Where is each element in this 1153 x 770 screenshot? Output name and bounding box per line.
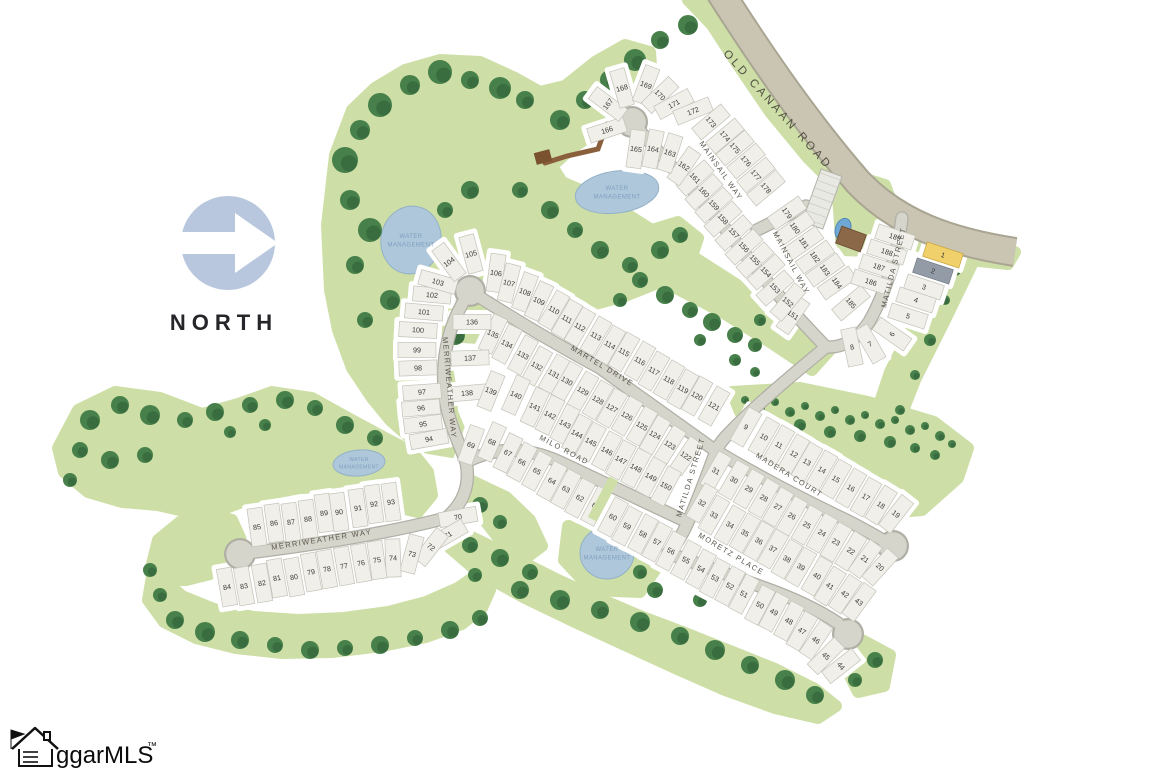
tree-icon	[472, 610, 488, 626]
tree-icon	[101, 451, 119, 469]
tree-icon	[407, 630, 423, 646]
lot-number: 90	[334, 507, 343, 517]
north-indicator: NORTH	[170, 196, 278, 335]
tree-icon	[591, 601, 609, 619]
lot-number: 106	[489, 268, 502, 279]
tree-icon	[930, 450, 940, 460]
water-management-label: WATER	[606, 186, 629, 192]
lot-number: 82	[257, 578, 266, 588]
tree-icon	[651, 241, 669, 259]
tree-icon	[72, 442, 88, 458]
water-management-label: MANAGEMENT	[387, 243, 434, 249]
tree-icon	[854, 430, 866, 442]
lot-number: 79	[306, 567, 315, 577]
tree-icon	[741, 656, 759, 674]
cul-de-sac	[226, 540, 254, 568]
tree-icon	[301, 641, 319, 659]
lot-number: 76	[356, 558, 365, 568]
tree-icon	[861, 411, 869, 419]
lot-number: 81	[272, 573, 281, 583]
tree-icon	[428, 60, 452, 84]
tree-icon	[910, 443, 920, 453]
tree-icon	[921, 422, 929, 430]
tree-icon	[511, 581, 529, 599]
tree-icon	[656, 286, 674, 304]
lot-number: 87	[286, 517, 295, 527]
tree-icon	[461, 181, 479, 199]
lot-number: 91	[353, 503, 362, 513]
tree-icon	[867, 652, 883, 668]
tree-icon	[632, 272, 648, 288]
tree-icon	[489, 77, 511, 99]
lot-number: 80	[289, 572, 298, 582]
tree-icon	[729, 354, 741, 366]
tree-icon	[259, 419, 271, 431]
lot-136[interactable]: 136	[453, 315, 491, 330]
tree-icon	[357, 312, 373, 328]
tree-icon	[567, 222, 583, 238]
lot-number: 165	[629, 144, 642, 155]
tree-icon	[775, 670, 795, 690]
tree-icon	[647, 582, 663, 598]
tree-icon	[143, 563, 157, 577]
lot-number: 77	[339, 561, 348, 571]
lot-number: 101	[418, 307, 431, 317]
tree-icon	[541, 201, 559, 219]
lot-74[interactable]: 74	[385, 539, 401, 578]
tree-icon	[468, 568, 482, 582]
tree-icon	[350, 120, 370, 140]
tree-icon	[845, 415, 855, 425]
tree-icon	[140, 405, 160, 425]
tree-icon	[111, 396, 129, 414]
tree-icon	[80, 410, 100, 430]
lot-number: 89	[319, 508, 328, 518]
north-label: NORTH	[170, 310, 278, 335]
tree-icon	[461, 71, 479, 89]
logo-text: ggarMLS	[56, 742, 153, 769]
tree-icon	[705, 640, 725, 660]
tree-icon	[630, 612, 650, 632]
tree-icon	[512, 182, 528, 198]
water-management-label: WATER	[596, 547, 619, 553]
tree-icon	[493, 515, 507, 529]
tree-icon	[824, 426, 836, 438]
lot-number: 102	[426, 290, 439, 300]
lot-number: 94	[424, 434, 433, 444]
tree-icon	[875, 419, 885, 429]
tree-icon	[336, 416, 354, 434]
lot-97[interactable]: 97	[403, 383, 442, 401]
tree-icon	[368, 93, 392, 117]
tree-icon	[750, 367, 760, 377]
lot-number: 86	[269, 518, 278, 528]
lot-96[interactable]: 96	[401, 399, 440, 417]
tree-icon	[948, 440, 956, 448]
tree-icon	[884, 436, 896, 448]
lot-101[interactable]: 101	[404, 303, 443, 321]
tree-icon	[166, 611, 184, 629]
tree-icon	[153, 588, 167, 602]
site-plan-map: 1234567891011121314151617181920212223242…	[0, 0, 1153, 770]
lot-number: 88	[303, 514, 312, 524]
tree-icon	[267, 637, 283, 653]
tree-icon	[307, 400, 323, 416]
tree-icon	[748, 338, 762, 352]
lot-number: 93	[386, 497, 395, 507]
tree-icon	[891, 416, 899, 424]
tree-icon	[400, 75, 420, 95]
lot-number: 83	[239, 581, 248, 591]
lot-number: 95	[418, 419, 427, 429]
tree-icon	[848, 673, 862, 687]
tree-icon	[367, 430, 383, 446]
tree-icon	[516, 91, 534, 109]
tree-icon	[137, 447, 153, 463]
tree-icon	[613, 293, 627, 307]
lot-number: 75	[372, 555, 381, 565]
water-management-label: MANAGEMENT	[339, 465, 379, 471]
lot-number: 85	[252, 522, 261, 532]
tree-icon	[671, 627, 689, 645]
water-management-label: WATER	[400, 234, 423, 240]
tree-icon	[337, 640, 353, 656]
tree-icon	[831, 406, 839, 414]
tree-icon	[491, 549, 509, 567]
tree-icon	[242, 397, 258, 413]
tree-icon	[358, 218, 382, 242]
cul-de-sac	[456, 277, 484, 305]
lot-number: 74	[389, 553, 397, 562]
tree-icon	[340, 190, 360, 210]
tree-icon	[346, 256, 364, 274]
tree-icon	[785, 407, 795, 417]
tree-icon	[727, 327, 743, 343]
tree-icon	[682, 302, 698, 318]
tree-icon	[206, 403, 224, 421]
lot-99[interactable]: 99	[398, 343, 436, 358]
logo-trademark: ™	[147, 741, 157, 752]
tree-icon	[910, 370, 920, 380]
tree-icon	[441, 621, 459, 639]
lot-number: 136	[466, 318, 478, 327]
tree-icon	[462, 537, 478, 553]
lot-number: 99	[413, 346, 421, 355]
lot-number: 92	[369, 499, 378, 509]
lot-number: 97	[418, 387, 427, 397]
tree-icon	[924, 334, 936, 346]
tree-icon	[651, 31, 669, 49]
lot-number: 137	[464, 353, 476, 362]
tree-icon	[754, 314, 766, 326]
tree-icon	[380, 290, 400, 310]
tree-icon	[905, 425, 915, 435]
tree-icon	[633, 565, 647, 579]
water-management-label: WATER	[349, 457, 369, 463]
water-management-label: MANAGEMENT	[583, 556, 630, 562]
tree-icon	[195, 622, 215, 642]
tree-icon	[231, 631, 249, 649]
tree-icon	[678, 15, 698, 35]
tree-icon	[63, 473, 77, 487]
lot-98[interactable]: 98	[399, 360, 438, 376]
tree-icon	[815, 411, 825, 421]
tree-icon	[550, 590, 570, 610]
tree-icon	[895, 405, 905, 415]
tree-icon	[177, 412, 193, 428]
tree-icon	[622, 257, 638, 273]
lot-100[interactable]: 100	[399, 322, 438, 339]
tree-icon	[276, 391, 294, 409]
tree-icon	[801, 402, 809, 410]
tree-icon	[672, 227, 688, 243]
tree-icon	[550, 110, 570, 130]
lot-number: 78	[322, 564, 331, 574]
tree-icon	[224, 426, 236, 438]
mls-logo: ggarMLS ™	[11, 728, 157, 769]
tree-icon	[371, 636, 389, 654]
tree-icon	[806, 686, 824, 704]
lot-number: 138	[461, 388, 474, 398]
tree-icon	[591, 241, 609, 259]
water-management-label: MANAGEMENT	[593, 195, 640, 201]
lot-number: 84	[222, 582, 231, 592]
lot-number: 98	[414, 363, 422, 372]
tree-icon	[935, 431, 945, 441]
lot-number: 96	[417, 403, 426, 413]
house-icon	[11, 728, 58, 766]
tree-icon	[522, 564, 538, 580]
tree-icon	[703, 313, 721, 331]
tree-icon	[437, 202, 453, 218]
tree-icon	[694, 334, 706, 346]
lot-number: 100	[412, 325, 424, 335]
lot-137[interactable]: 137	[451, 350, 490, 366]
tree-icon	[332, 147, 358, 173]
